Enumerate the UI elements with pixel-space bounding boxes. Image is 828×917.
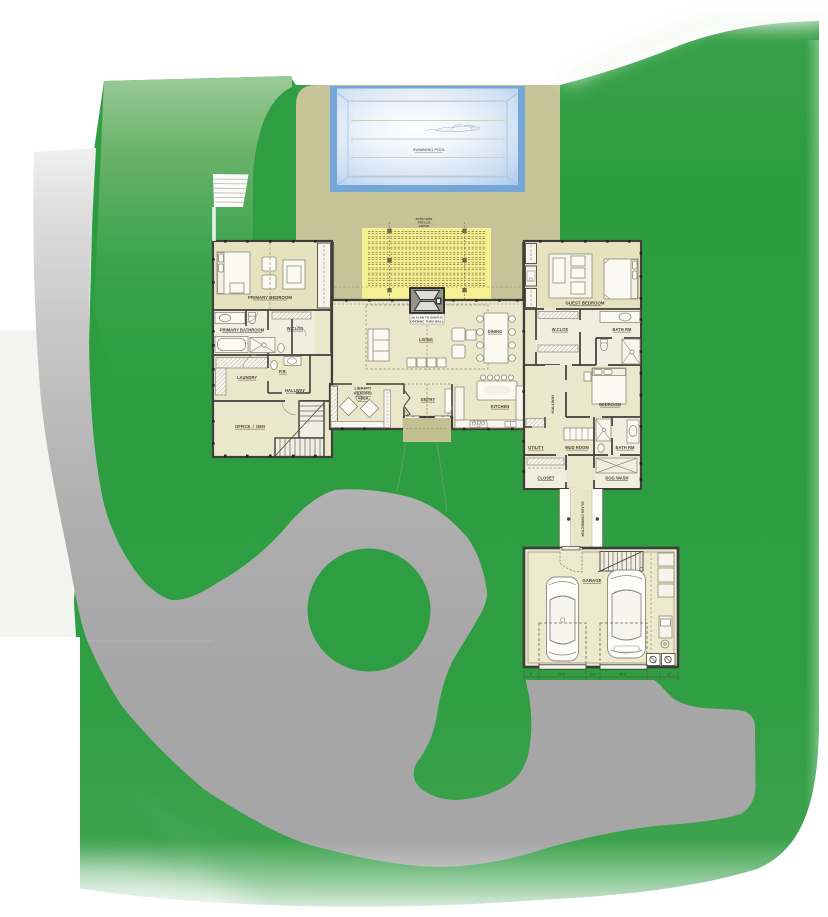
svg-text:3'-6": 3'-6" — [590, 673, 597, 677]
svg-text:GUEST BEDROOM: GUEST BEDROOM — [565, 301, 604, 306]
svg-text:LIBRARY: LIBRARY — [354, 387, 372, 391]
svg-text:OPENING THRU WALL: OPENING THRU WALL — [410, 320, 443, 324]
svg-text:24'-0": 24'-0" — [619, 673, 627, 677]
svg-text:PRIMARY BEDROOM: PRIMARY BEDROOM — [248, 295, 292, 300]
svg-text:W.CLOS: W.CLOS — [287, 326, 304, 331]
svg-text:9': 9' — [530, 673, 532, 677]
svg-text:OFFICE / DEN: OFFICE / DEN — [235, 424, 265, 429]
svg-text:DINING: DINING — [488, 329, 503, 334]
svg-text:ENTRY: ENTRY — [421, 397, 435, 402]
svg-text:SWIMMING POOL: SWIMMING POOL — [413, 148, 446, 152]
svg-text:LIVING: LIVING — [419, 337, 433, 342]
svg-text:CLOSET: CLOSET — [538, 476, 555, 481]
svg-text:GLASS CONNECTOR: GLASS CONNECTOR — [581, 501, 585, 537]
svg-text:24'-0": 24'-0" — [558, 673, 566, 677]
svg-text:BATH RM: BATH RM — [616, 445, 635, 450]
svg-text:W.CLOS: W.CLOS — [552, 327, 569, 332]
svg-text:AREA: AREA — [358, 397, 369, 401]
svg-text:HALLWAY: HALLWAY — [285, 388, 305, 393]
svg-text:KITCHEN: KITCHEN — [491, 404, 510, 409]
svg-text:PRIMARY BATHROOM: PRIMARY BATHROOM — [220, 328, 265, 333]
svg-text:BEDROOM: BEDROOM — [599, 402, 621, 407]
svg-text:DOG WASH: DOG WASH — [605, 476, 628, 481]
svg-text:LAUNDRY: LAUNDRY — [237, 375, 257, 380]
svg-text:11': 11' — [667, 673, 671, 677]
svg-text:ABOVE: ABOVE — [419, 224, 430, 228]
svg-text:BATH RM: BATH RM — [613, 327, 632, 332]
svg-text:GARAGE: GARAGE — [582, 578, 601, 583]
svg-text:READING: READING — [354, 392, 372, 396]
svg-text:HALLWAY: HALLWAY — [550, 394, 555, 413]
svg-text:MUD ROOM: MUD ROOM — [565, 445, 589, 450]
svg-text:P.R.: P.R. — [279, 369, 287, 374]
svg-text:UTILITY: UTILITY — [528, 445, 544, 450]
